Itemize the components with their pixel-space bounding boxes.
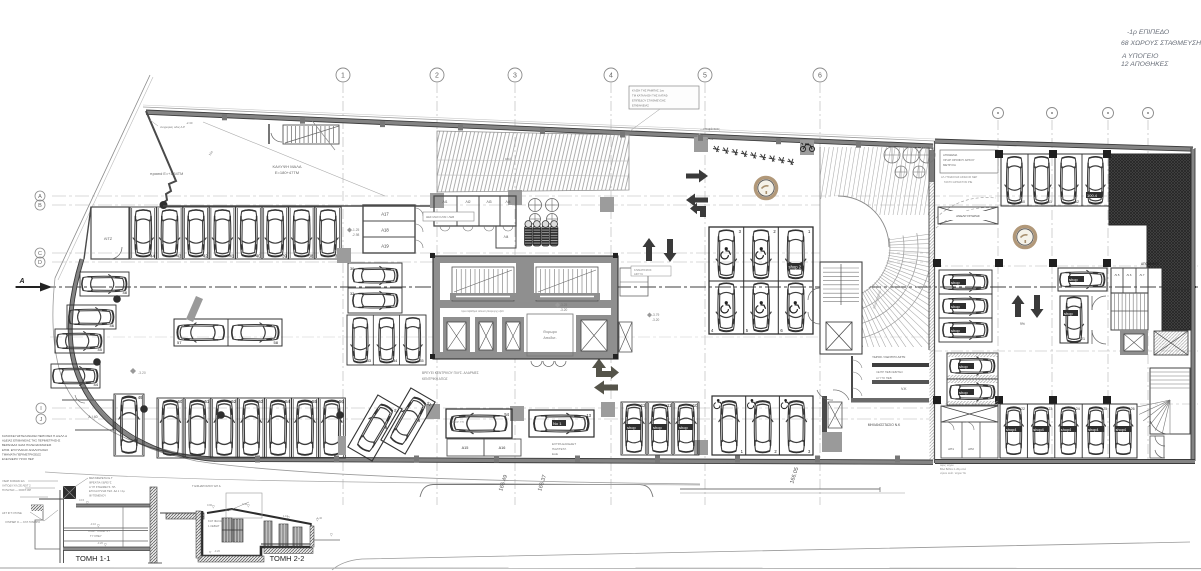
- svg-text:A: A: [38, 194, 42, 200]
- svg-text:ΛΙ3: ΛΙ3: [486, 200, 491, 204]
- svg-text:ΜΗΧΑΝΟΣΤΑΣΙΟ Ν.Κ: ΜΗΧΑΝΟΣΤΑΣΙΟ Ν.Κ: [868, 423, 901, 427]
- svg-text:-3.20: -3.20: [214, 549, 220, 553]
- svg-text:46: 46: [110, 323, 115, 328]
- svg-text:13: 13: [586, 413, 591, 418]
- svg-text:ΑΛ ΥΠΟΔΟΧΗΣ ΑΣΦΑΛΙΣ ΝΕΡ: ΑΛ ΥΠΟΔΟΧΗΣ ΑΣΦΑΛΙΣ ΝΕΡ: [941, 175, 977, 179]
- svg-text:D: D: [38, 260, 42, 266]
- svg-text:ΑΠΟΘΕΜΑ: ΑΠΟΘΕΜΑ: [943, 153, 957, 157]
- svg-text:1.40: 1.40: [317, 516, 323, 520]
- svg-text:C: C: [38, 251, 42, 257]
- svg-text:ΓΚΑΡ. ΥΠΑΙΘ. ΣΤ: ΓΚΑΡ. ΥΠΑΙΘ. ΣΤ: [88, 529, 110, 533]
- svg-text:ΚΑΤΑΣΚΕΥΗΣΤΕΛΑΝΗΣΕΙ ΠΕΡΙΟΧΕΣ: ΚΑΤΑΣΚΕΥΗΣΤΕΛΑΝΗΣΕΙ ΠΕΡΙΟΧΕΣ Π.Δ ΕΛΛ.Δ: [2, 434, 67, 438]
- svg-text:κεκλ.: κεκλ.: [505, 157, 512, 161]
- svg-text:ΑΔΕΙΑΣ ΕΠΙΦΑΝΕΙΑΣ ΤΗΣ ΠΕΡΙΜΕΤΡ: ΑΔΕΙΑΣ ΕΠΙΦΑΝΕΙΑΣ ΤΗΣ ΠΕΡΙΜΕΤΡΗΣΗΣ: [2, 439, 61, 443]
- svg-text:62: 62: [1075, 200, 1079, 204]
- svg-text:48: 48: [123, 290, 128, 295]
- svg-text:ΕΞΕ: ΕΞΕ: [552, 452, 558, 456]
- svg-text:ΒΡΕϒΕΙ ΚΕΝΤΡΙΚΟΥ ΠΛΥΣ. ΑΛΑΡΜΕΣ: ΒΡΕϒΕΙ ΚΕΝΤΡΙΚΟΥ ΠΛΥΣ. ΑΛΑΡΜΕΣ: [422, 371, 479, 375]
- svg-text:αφός τοίχου: αφός τοίχου: [940, 463, 954, 467]
- svg-text:22: 22: [1021, 407, 1025, 411]
- svg-text:-1.25: -1.25: [352, 228, 359, 232]
- svg-text:1.10: 1.10: [283, 514, 289, 518]
- svg-text:-2.98: -2.98: [352, 233, 359, 237]
- svg-text:shop: shop: [653, 425, 662, 430]
- svg-text:-3.20: -3.20: [97, 541, 103, 545]
- svg-text:—επιφάνειας: —επιφάνειας: [700, 127, 720, 131]
- svg-text:Βίλα Βάθου 1.20μ από: Βίλα Βάθου 1.20μ από: [940, 467, 967, 471]
- svg-text:shop 2: shop 2: [789, 265, 802, 270]
- svg-text:53: 53: [258, 399, 263, 404]
- svg-text:ΚΑΛΥΨΗ ΜΑΛΑ: ΚΑΛΥΨΗ ΜΑΛΑ: [272, 164, 301, 169]
- svg-text:ΠΑΖ/ΤΕΤΛ: ΠΑΖ/ΤΕΤΛ: [552, 447, 566, 451]
- svg-text:ΜΕΤΑΦΕΡΕΤΑΙ Ε.Τ: ΜΕΤΑΦΕΡΕΤΑΙ Ε.Τ: [89, 476, 113, 480]
- svg-text:4: 4: [609, 73, 613, 80]
- svg-text:45: 45: [98, 347, 103, 352]
- svg-text:ΛΙ.7: ΛΙ.7: [1140, 273, 1145, 277]
- svg-text:58: 58: [274, 340, 279, 345]
- svg-text:44: 44: [94, 382, 99, 387]
- svg-text:shop: shop: [1069, 277, 1078, 282]
- svg-text:ΥΠΟΓ. ΤΠ: ΥΠΟΓ. ΤΠ: [452, 420, 464, 424]
- svg-text:10: 10: [693, 403, 698, 408]
- svg-text:shop: shop: [679, 425, 688, 430]
- svg-text:-3.20: -3.20: [560, 308, 567, 312]
- svg-text:shop4: shop4: [1116, 428, 1126, 432]
- svg-text:30: 30: [350, 267, 354, 271]
- svg-text:shop: shop: [951, 328, 960, 333]
- svg-text:54: 54: [285, 399, 290, 404]
- svg-text:V.K: V.K: [901, 387, 907, 391]
- svg-text:ΕΠΙΦΑΝΕΙΑΣ: ΕΠΙΦΑΝΕΙΑΣ: [632, 104, 649, 108]
- svg-text:ΛΥΠΟΔ/Υ.ΚΛ.ΣΕ ΛΕΙΤ 2: ΛΥΠΟΔ/Υ.ΚΛ.ΣΕ ΛΕΙΤ 2: [2, 484, 31, 488]
- svg-text:38: 38: [309, 254, 314, 259]
- svg-text:ΛΙ4: ΛΙ4: [505, 200, 510, 204]
- svg-text:shop4: shop4: [1088, 428, 1098, 432]
- svg-text:Α Ι 40: Α Ι 40: [88, 415, 97, 419]
- svg-text:0.15: 0.15: [79, 498, 85, 502]
- svg-text:shop: shop: [951, 304, 960, 309]
- svg-text:25: 25: [1103, 407, 1107, 411]
- svg-text:54: 54: [504, 412, 509, 417]
- svg-text:shop: shop: [959, 364, 968, 369]
- svg-text:56: 56: [339, 399, 344, 404]
- svg-text:ΕΠ ΚΑΛΥΨΗΣ ΤΕΧ. ΔΑ 1 / 2μ.: ΕΠ ΚΑΛΥΨΗΣ ΤΕΧ. ΔΑ 1 / 2μ.: [89, 489, 126, 493]
- svg-text:24: 24: [1076, 407, 1080, 411]
- svg-text:ΘΕΣ ΜΗΧ ΚΛΙΜ / ΛΕΒ: ΘΕΣ ΜΗΧ ΚΛΙΜ / ΛΕΒ: [426, 215, 454, 219]
- svg-text:ΛΕΙΤΡ ΠΕΒ ΛΕΒ/ΤΕΛ: ΛΕΙΤΡ ΠΕΒ ΛΕΒ/ΤΕΛ: [876, 370, 903, 374]
- svg-text:50: 50: [178, 399, 183, 404]
- svg-text:ΛΙ.5: ΛΙ.5: [1115, 273, 1120, 277]
- svg-text:-3.79: -3.79: [652, 313, 659, 317]
- svg-text:3: 3: [513, 73, 517, 80]
- svg-text:100.4: 100.4: [1087, 193, 1098, 198]
- svg-text:5: 5: [703, 73, 707, 80]
- svg-text:Αποδυτ.: Αποδυτ.: [543, 336, 556, 340]
- svg-text:shop4: shop4: [1033, 428, 1043, 432]
- svg-text:Α16: Α16: [499, 446, 506, 450]
- svg-text:Α17: Α17: [381, 212, 389, 217]
- svg-text:ΚΕΝΤΡΙΚΗ ΑΠΟΖ: ΚΕΝΤΡΙΚΗ ΑΠΟΖ: [422, 377, 448, 381]
- svg-text:A: A: [18, 278, 24, 285]
- svg-text:1: 1: [341, 73, 345, 80]
- svg-text:ΕΧΤΡΑ ΕΑΚΕΔΕΤ: ΕΧΤΡΑ ΕΑΚΕΔΕΤ: [552, 442, 576, 446]
- svg-text:43: 43: [177, 254, 182, 259]
- svg-text:ΕΛΕΥΘΕΡΟ ΥΨΟΣ ΠΕΡ: ΕΛΕΥΘΕΡΟ ΥΨΟΣ ΠΕΡ: [2, 457, 34, 461]
- svg-text:49: 49: [138, 395, 143, 400]
- svg-text:J: J: [40, 417, 43, 423]
- svg-text:12 ΑΠΟΘΗΚΕΣ: 12 ΑΠΟΘΗΚΕΣ: [1121, 61, 1169, 68]
- svg-text:ΤΜ ΚΑΤΑΛΗΞΗ ΤΗΣ ΚΑΤΑΦ.: ΤΜ ΚΑΤΑΛΗΞΗ ΤΗΣ ΚΑΤΑΦ.: [632, 94, 668, 98]
- svg-text:shop: shop: [627, 425, 636, 430]
- svg-text:ΦΥΤΕΜΕΝΟΥ: ΦΥΤΕΜΕΝΟΥ: [89, 494, 106, 498]
- svg-text:shop4: shop4: [1006, 428, 1016, 432]
- svg-text:Α18: Α18: [381, 228, 389, 233]
- svg-text:-2.30: -2.30: [186, 121, 193, 125]
- svg-text:ΤΜΗΜΑΤΑ ΠΕΡΙΜΕΤΡΗΣΕΩΣ: ΤΜΗΜΑΤΑ ΠΕΡΙΜΕΤΡΗΣΕΩΣ: [2, 452, 41, 456]
- svg-text:9%: 9%: [1020, 322, 1025, 326]
- svg-text:ΤΑΚΤΟ ΑΡΧΗΚΤΟΝ ΙΠΕ: ΤΑΚΤΟ ΑΡΧΗΚΤΟΝ ΙΠΕ: [944, 180, 973, 184]
- svg-text:57: 57: [177, 340, 182, 345]
- svg-text:68 ΧΩΡΟΥΣ ΣΤΑΘΜΕΥΣΗΣ: 68 ΧΩΡΟΥΣ ΣΤΑΘΜΕΥΣΗΣ: [1121, 40, 1201, 47]
- svg-text:Θυρωρο: Θυρωρο: [543, 330, 557, 334]
- svg-text:42: 42: [203, 254, 208, 259]
- svg-text:51: 51: [205, 399, 210, 404]
- svg-text:ΛΙ1: ΛΙ1: [442, 200, 447, 204]
- svg-text:55: 55: [312, 399, 317, 404]
- svg-text:ΧΡ ΑΡ ΟΡΟΦΟΥ ΑΡΧ/ΛΥ: ΧΡ ΑΡ ΟΡΟΦΟΥ ΑΡΧ/ΛΥ: [943, 158, 975, 162]
- svg-text:ΛΙ.6: ΛΙ.6: [1127, 273, 1132, 277]
- svg-text:-1ρ ΕΠΙΠΕΔΟ: -1ρ ΕΠΙΠΕΔΟ: [1127, 29, 1170, 36]
- svg-text:shop4: shop4: [1061, 428, 1071, 432]
- svg-text:Τ ΕΦΗΔΡΟΜΙΟΥ ΕΠ Δ: Τ ΕΦΗΔΡΟΜΙΟΥ ΕΠ Δ: [192, 484, 221, 488]
- svg-text:TOMH 2-2: TOMH 2-2: [270, 554, 305, 563]
- svg-text:34: 34: [393, 359, 397, 363]
- svg-text:shop: shop: [951, 280, 960, 285]
- svg-text:Α ΥΠΟΓΕΙΟ: Α ΥΠΟΓΕΙΟ: [1121, 53, 1159, 60]
- svg-text:πρασιά Ε=+1.64ΤΜ: πρασιά Ε=+1.64ΤΜ: [150, 172, 183, 176]
- svg-text:ΛΥΜΠΕΡ Ο — ΚΛΤ ΛΥΜΠΡΟ: ΛΥΜΠΕΡ Ο — ΚΛΤ ΛΥΜΠΡΟ: [5, 520, 40, 524]
- svg-text:TOMH 1-1: TOMH 1-1: [76, 554, 111, 563]
- svg-text:0.90: 0.90: [207, 503, 213, 507]
- svg-text:12: 12: [641, 403, 646, 408]
- svg-text:39: 39: [282, 254, 287, 259]
- svg-text:35: 35: [419, 359, 423, 363]
- svg-text:πρευτοβαθμια οδευση διαφυγης ε: πρευτοβαθμια οδευση διαφυγης εξοδ: [461, 309, 504, 313]
- svg-text:νήσου ανάτ. τοίχου ΥΔ: νήσου ανάτ. τοίχου ΥΔ: [940, 471, 966, 475]
- svg-text:ΔΙΚΤΥΑ: ΔΙΚΤΥΑ: [634, 272, 643, 276]
- svg-text:ΥΔΡΟΣ / ΚΕΝΤΡΟ ΑΣΤΝ: ΥΔΡΟΣ / ΚΕΝΤΡΟ ΑΣΤΝ: [872, 355, 905, 359]
- svg-text:ΑΠ1: ΑΠ1: [948, 447, 954, 451]
- svg-text:ΕΠΙΠΕΔΟΥ ΣΤΑΘΜΕΥΣΗΣ: ΕΠΙΠΕΔΟΥ ΣΤΑΘΜΕΥΣΗΣ: [632, 99, 666, 103]
- svg-text:33: 33: [367, 359, 371, 363]
- svg-text:1 ΛΕΒΗΤ: 1 ΛΕΒΗΤ: [208, 524, 220, 528]
- svg-text:B: B: [38, 203, 42, 209]
- svg-text:20: 20: [1100, 272, 1104, 276]
- svg-text:ΚΑΤ ΦΑΛΑΡ: ΚΑΤ ΦΑΛΑΡ: [208, 519, 224, 523]
- svg-text:52: 52: [231, 399, 236, 404]
- svg-text:ΛΙΤΖ: ΛΙΤΖ: [104, 237, 113, 241]
- svg-text:ΑΠΟΘΗΚΕΣ: ΑΠΟΘΗΚΕΣ: [1141, 262, 1159, 266]
- svg-text:32: 32: [350, 292, 354, 296]
- svg-text:ΑΝΕΛΚΥΣΤΗΡΑΣ: ΑΝΕΛΚΥΣΤΗΡΑΣ: [956, 214, 980, 218]
- svg-text:ΕΠΙΦ. ΕΠΙ ΠΛΑΚΑΣ ΑΝΑΛΟΓΗΣΗΣ: ΕΠΙΦ. ΕΠΙ ΠΛΑΚΑΣ ΑΝΑΛΟΓΗΣΗΣ: [2, 448, 48, 452]
- svg-text:Α19: Α19: [381, 244, 389, 249]
- svg-text:ΦΡΕΑΤΙΑ ΥΔΡΕΥΣ: ΦΡΕΑΤΙΑ ΥΔΡΕΥΣ: [89, 480, 112, 484]
- svg-text:ΑΣΤ ΙΚΤ ΟΤΛΝΕ: ΑΣΤ ΙΚΤ ΟΤΛΝΕ: [2, 511, 22, 515]
- svg-text:2: 2: [435, 73, 439, 80]
- svg-text:ΑΠ2: ΑΠ2: [968, 447, 974, 451]
- svg-text:ΠΥΛΩΤΗ/Ι — ΙΣΟΣΤ.ΙΧΡ: ΠΥΛΩΤΗ/Ι — ΙΣΟΣΤ.ΙΧΡ: [2, 488, 31, 492]
- svg-text:ΛΙ2: ΛΙ2: [465, 200, 470, 204]
- svg-text:ανηφορικη οδος Α.Ρ: ανηφορικη οδος Α.Ρ: [160, 125, 185, 129]
- svg-text:ΥΔΩΡ ΚΟΙΝΩΝ ΕΛ: ΥΔΩΡ ΚΟΙΝΩΝ ΕΛ: [2, 479, 25, 483]
- svg-text:-2.46: -2.46: [706, 137, 713, 141]
- svg-text:ΛΙ4: ΛΙ4: [504, 235, 509, 239]
- svg-text:No 1: No 1: [553, 421, 562, 426]
- svg-text:-3.20: -3.20: [138, 371, 146, 375]
- svg-text:60: 60: [1021, 200, 1025, 204]
- svg-text:23: 23: [1048, 407, 1052, 411]
- svg-text:44: 44: [150, 254, 155, 259]
- svg-text:ΚΛΙΜΑΤΙΣΜΟΣ: ΚΛΙΜΑΤΙΣΜΟΣ: [634, 268, 652, 272]
- svg-text:ΒΕΡΑΝΔΑΣ ΙΔΙΑΣ ΠΟΛΕΟΔΟΜΗΣΕΙΣ: ΒΕΡΑΝΔΑΣ ΙΔΙΑΣ ΠΟΛΕΟΔΟΜΗΣΕΙΣ: [2, 443, 52, 447]
- svg-text:Ε=180+47ΤΜ: Ε=180+47ΤΜ: [275, 170, 299, 175]
- svg-text:61: 61: [1048, 200, 1052, 204]
- svg-text:11: 11: [667, 403, 672, 408]
- svg-text:-3.25: -3.25: [560, 303, 567, 307]
- svg-text:shop: shop: [1064, 311, 1073, 316]
- svg-text:ΚΛΙΣΗ ΤΗΣ ΡΑΜΠΑΣ 1ου: ΚΛΙΣΗ ΤΗΣ ΡΑΜΠΑΣ 1ου: [632, 89, 665, 93]
- svg-text:6: 6: [818, 73, 822, 80]
- svg-text:Α15: Α15: [462, 446, 469, 450]
- svg-text:21: 21: [1081, 337, 1085, 341]
- svg-text:-3.20: -3.20: [652, 318, 659, 322]
- svg-text:0.46: 0.46: [242, 502, 248, 506]
- svg-text:41: 41: [229, 254, 234, 259]
- svg-text:Α ΥΠ ΣΤΑΘΜΕΥΣ. ΠΛ: Α ΥΠ ΣΤΑΘΜΕΥΣ. ΠΛ: [89, 485, 116, 489]
- svg-text:ΑΙ ΥΤΟ ΠΕΒ: ΑΙ ΥΤΟ ΠΕΒ: [876, 376, 892, 380]
- svg-text:ΤΥ ΣΠΕΥ: ΤΥ ΣΠΕΥ: [90, 534, 102, 538]
- svg-text:40: 40: [256, 254, 261, 259]
- svg-text:ΜΕΤΡ ΙΣΑ: ΜΕΤΡ ΙΣΑ: [943, 163, 956, 167]
- svg-text:shop: shop: [959, 390, 968, 395]
- svg-text:-3.10: -3.10: [90, 522, 96, 526]
- svg-text:26: 26: [1131, 407, 1135, 411]
